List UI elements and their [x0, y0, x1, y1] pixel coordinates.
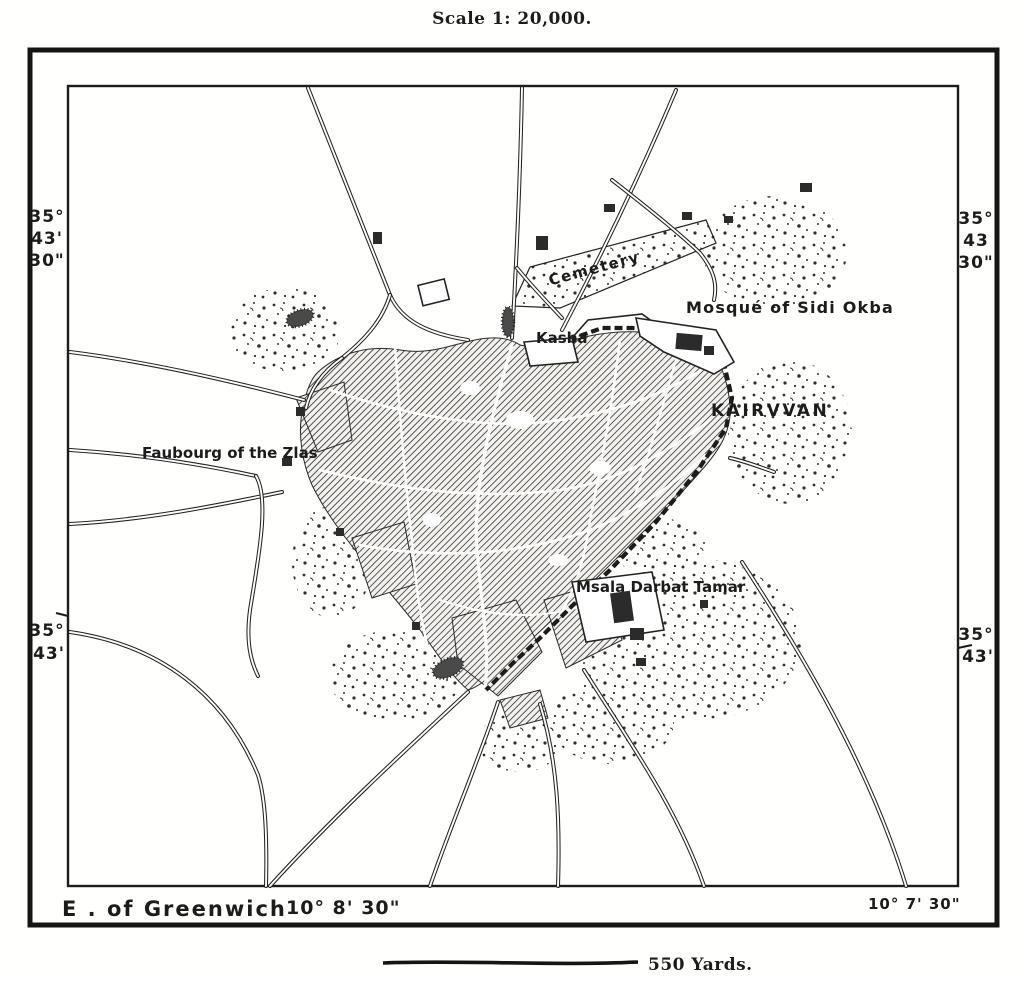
longitude-left-label: 10° 8' 30" [286, 897, 401, 919]
scale-bar: 550 Yards. [383, 955, 753, 975]
scale-bar-label: 550 Yards. [648, 955, 753, 975]
city-name-label: KAIRVVAN [711, 401, 829, 421]
latitude-top-left: 35° 43' 30" [29, 207, 65, 271]
latitude-top-right: 35° 43 30" [958, 209, 994, 273]
lat-br-min: 43' [962, 647, 994, 667]
lat-tr-min: 43 [963, 231, 989, 251]
latitude-tick-left [56, 613, 68, 616]
lat-tl-sec: 30" [29, 251, 65, 271]
lat-bl-min: 43' [33, 644, 65, 664]
minaret [704, 346, 714, 355]
outbuilding [630, 628, 644, 640]
walled-garden [418, 279, 449, 306]
msala-label: Msala Darbat Tamar [576, 578, 746, 596]
kasba-label: Kasba [536, 329, 588, 347]
faubourg-label: Faubourg of the Zlas [142, 444, 318, 462]
latitude-bottom-left: 35° 43' [29, 621, 65, 664]
lat-tl-min: 43' [31, 229, 63, 249]
lat-bl-deg: 35° [29, 621, 64, 641]
map-canvas: Scale 1: 20,000. [0, 0, 1024, 983]
scale-title: Scale 1: 20,000. [432, 9, 592, 29]
greenwich-label: E . of Greenwich [62, 897, 287, 921]
map-page: Scale 1: 20,000. [0, 0, 1024, 983]
lat-tr-sec: 30" [958, 253, 994, 273]
lat-br-deg: 35° [958, 625, 993, 645]
lat-tr-deg: 35° [958, 209, 993, 229]
mosque-building [675, 333, 702, 351]
longitude-strip: E . of Greenwich 10° 8' 30" 10° 7' 30" [62, 895, 961, 921]
scale-bar-line [383, 962, 638, 963]
mosque-label: Mosqué of Sidi Okba [686, 298, 894, 317]
longitude-right-label: 10° 7' 30" [868, 895, 961, 913]
lat-tl-deg: 35° [29, 207, 64, 227]
